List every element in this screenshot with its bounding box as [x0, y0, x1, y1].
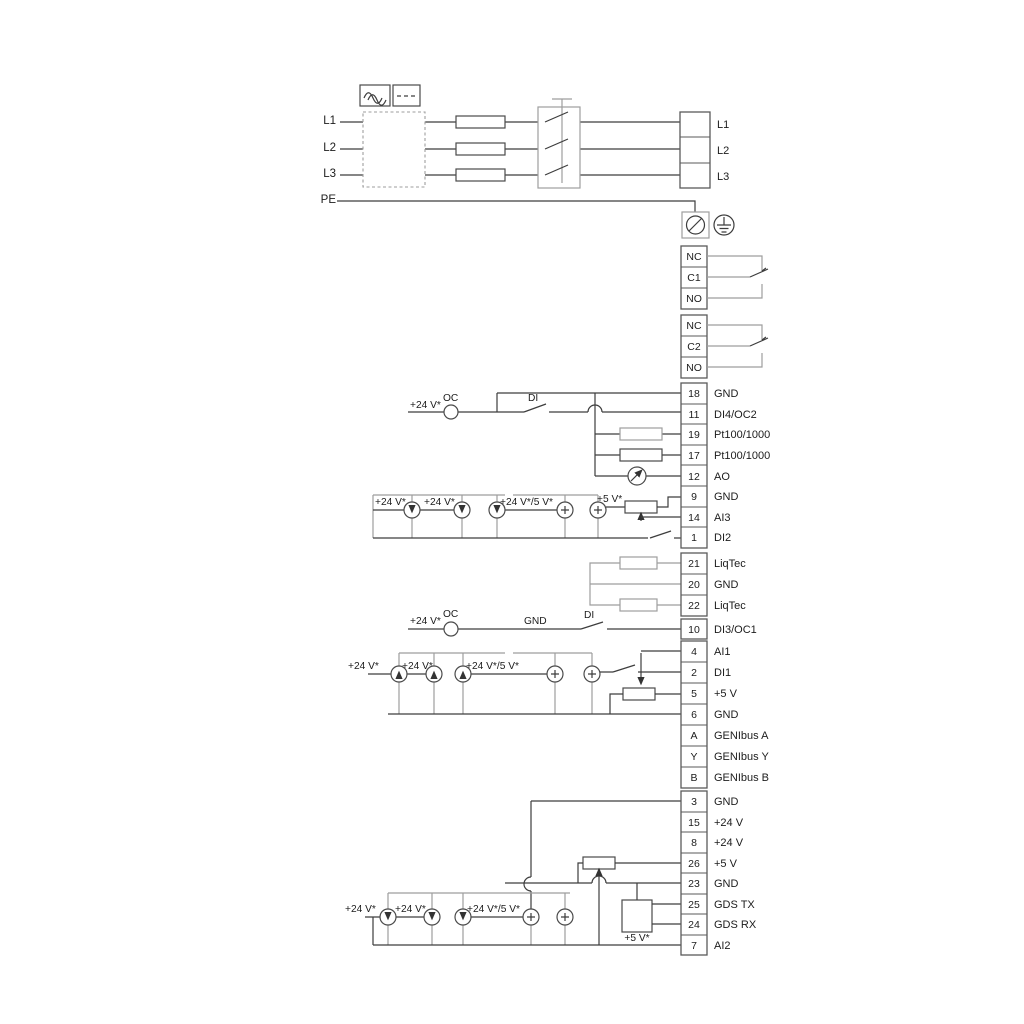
- terminal-number: Y: [690, 751, 697, 763]
- terminal-number: 9: [691, 491, 697, 503]
- relay1-contact-blade: [750, 268, 768, 277]
- terminal-label: GENIbus Y: [714, 751, 769, 763]
- gds-sensor-box: [622, 900, 652, 932]
- terminal-label: GND: [714, 709, 739, 721]
- terminal-label: L1: [717, 119, 729, 131]
- terminal-label: GDS RX: [714, 919, 757, 931]
- ground-glyph: [717, 217, 731, 232]
- mains-wires: [337, 122, 695, 212]
- relay1-no: NO: [686, 293, 702, 305]
- terminal-label: DI4/OC2: [714, 409, 757, 421]
- di-label: DI: [584, 610, 594, 621]
- terminal-label: AI1: [714, 646, 731, 658]
- terminal-label: DI3/OC1: [714, 624, 757, 636]
- terminal-label: GND: [714, 796, 739, 808]
- relay2-section: NC C2 NO: [681, 315, 768, 378]
- terminal-label: Pt100/1000: [714, 429, 770, 441]
- terminal-number: 15: [688, 817, 700, 829]
- terminal-strip-a: 18 11 19 17 12 9 14 1 GND DI4/OC2 Pt100/…: [681, 383, 770, 548]
- supply-label: +24 V*/5 V*: [500, 497, 553, 508]
- terminal-strip-b: 21 20 22 LiqTec GND LiqTec: [681, 553, 746, 616]
- open-collector-icon: [444, 622, 458, 636]
- terminal-label: GND: [714, 491, 739, 503]
- supply-label: +24 V*: [424, 497, 455, 508]
- terminal-label: GND: [714, 579, 739, 591]
- terminal-label: +5 V: [714, 858, 738, 870]
- terminal-number: 25: [688, 899, 700, 911]
- terminal-label: GENIbus A: [714, 730, 769, 742]
- terminal-label: GDS TX: [714, 899, 755, 911]
- relay2-nc: NC: [686, 320, 702, 332]
- terminal-number: 2: [691, 667, 697, 679]
- relay1-section: NC C1 NO: [681, 246, 768, 309]
- power-input-section: L1 L2 L3 PE L1 L2 L3: [321, 85, 734, 238]
- supply-label: +24 V*: [395, 904, 426, 915]
- terminal-number: 22: [688, 600, 700, 612]
- terminal-number: 5: [691, 688, 697, 700]
- terminal-label: L2: [717, 145, 729, 157]
- terminal-label: DI1: [714, 667, 731, 679]
- di-label: DI: [528, 393, 538, 404]
- pot-wire-gnd: [657, 497, 681, 507]
- fuse-l2: [456, 143, 505, 155]
- terminal-label: LiqTec: [714, 558, 746, 570]
- potentiometer: [623, 688, 655, 700]
- terminal-number: 20: [688, 579, 700, 591]
- terminal-number: 17: [688, 450, 700, 462]
- gnd-label: GND: [524, 616, 547, 627]
- terminal-label: GND: [714, 388, 739, 400]
- pt100-resistor: [620, 449, 662, 461]
- pt100-resistor: [620, 428, 662, 440]
- supply-label: +24 V*/5 V*: [467, 904, 520, 915]
- terminal-number: 12: [688, 471, 700, 483]
- terminal-number: 26: [688, 858, 700, 870]
- relay2-wires: [707, 325, 762, 367]
- potentiometer: [583, 857, 615, 869]
- terminal-number: 14: [688, 512, 700, 524]
- di2-switch-blade: [650, 531, 671, 538]
- terminal-number: 21: [688, 558, 700, 570]
- fuse-l3: [456, 169, 505, 181]
- terminal-strip-c: 4 2 5 6 A Y B AI1 DI1 +5 V GND GENIbus A…: [681, 641, 769, 788]
- relay1-nc: NC: [686, 251, 702, 263]
- terminal-label: +24 V: [714, 837, 744, 849]
- terminal-number: 6: [691, 709, 697, 721]
- liqtec-resistor: [620, 557, 657, 569]
- terminal-number: 18: [688, 388, 700, 400]
- relay1-wires: [707, 256, 762, 298]
- di4-switch-blade: [524, 404, 546, 412]
- wiring-diagram-page: L1 L2 L3 PE L1 L2 L3: [0, 0, 1024, 1024]
- supply-label: +5 V*: [624, 933, 649, 944]
- line-label-l1: L1: [323, 115, 336, 127]
- ai2-sensor-group: +24 V* +24 V* +24 V*/5 V* +5 V*: [345, 801, 681, 945]
- supply-label: +24 V*: [345, 904, 376, 915]
- terminal-10: 10 DI3/OC1: [681, 619, 757, 639]
- terminal-label: +5 V: [714, 688, 738, 700]
- terminal-label: AO: [714, 471, 730, 483]
- relay2-contact-blade: [750, 337, 768, 346]
- terminal-label: AI3: [714, 512, 731, 524]
- terminal-label: L3: [717, 171, 729, 183]
- terminal-label: GND: [714, 878, 739, 890]
- terminal-label: +24 V: [714, 817, 744, 829]
- terminal-number: 23: [688, 878, 700, 890]
- line-label-l2: L2: [323, 142, 336, 154]
- line-label-pe: PE: [321, 194, 337, 206]
- terminal-number: A: [690, 730, 697, 742]
- supply-label: +24 V*: [410, 616, 441, 627]
- terminal-number: 3: [691, 796, 697, 808]
- mains-terminal-block: [680, 112, 710, 188]
- open-collector-icon: [444, 405, 458, 419]
- terminal-strip-d: 3 15 8 26 23 25 24 7 GND +24 V +24 V +5 …: [681, 791, 757, 955]
- supply-label: +24 V*: [410, 400, 441, 411]
- oc-label: OC: [443, 393, 458, 404]
- di1-switch-blade: [613, 665, 635, 672]
- wire-jump: [524, 877, 531, 891]
- di3-switch-blade: [581, 622, 603, 629]
- line-label-l3: L3: [323, 168, 336, 180]
- fuse-l1: [456, 116, 505, 128]
- liqtec-resistor: [620, 599, 657, 611]
- filter-dashed-box: [363, 112, 425, 187]
- terminal-number: 11: [689, 409, 700, 421]
- terminal-number: 4: [691, 646, 697, 658]
- terminal-number: 8: [691, 837, 697, 849]
- oc-label: OC: [443, 609, 458, 620]
- terminal-label: LiqTec: [714, 600, 746, 612]
- terminal-label: AI2: [714, 940, 731, 952]
- terminal-label: GENIbus B: [714, 772, 769, 784]
- supply-label: +24 V*: [375, 497, 406, 508]
- supply-label: +24 V*: [348, 661, 379, 672]
- terminal-label: DI2: [714, 532, 731, 544]
- potentiometer: [625, 501, 657, 513]
- terminal-number: 24: [688, 919, 700, 931]
- terminal-number: 10: [688, 624, 700, 636]
- supply-label: +24 V*/5 V*: [466, 661, 519, 672]
- relay2-c2: C2: [687, 341, 701, 353]
- strip-a-circuit: +24 V* OC DI: [408, 393, 681, 485]
- relay2-no: NO: [686, 362, 702, 374]
- wiring-diagram: L1 L2 L3 PE L1 L2 L3: [0, 0, 1024, 1024]
- terminal-number: 1: [691, 532, 697, 544]
- contactor-box: [538, 107, 580, 188]
- ai1-sensor-group: +24 V* +24 V* +24 V*/5 V*: [348, 651, 681, 714]
- terminal-label: Pt100/1000: [714, 450, 770, 462]
- terminal-number: 19: [688, 429, 700, 441]
- terminal-number: 7: [691, 940, 697, 952]
- relay1-c1: C1: [687, 272, 701, 284]
- liqtec-circuit: [590, 557, 681, 611]
- ai3-sensor-group: +24 V* +24 V* +24 V*/5 V* +5 V*: [373, 494, 681, 538]
- ao-meter-icon: [628, 467, 646, 485]
- terminal-number: B: [690, 772, 697, 784]
- ai2-bracket-rails: [388, 893, 570, 945]
- di3-circuit: +24 V* OC GND DI: [408, 609, 681, 636]
